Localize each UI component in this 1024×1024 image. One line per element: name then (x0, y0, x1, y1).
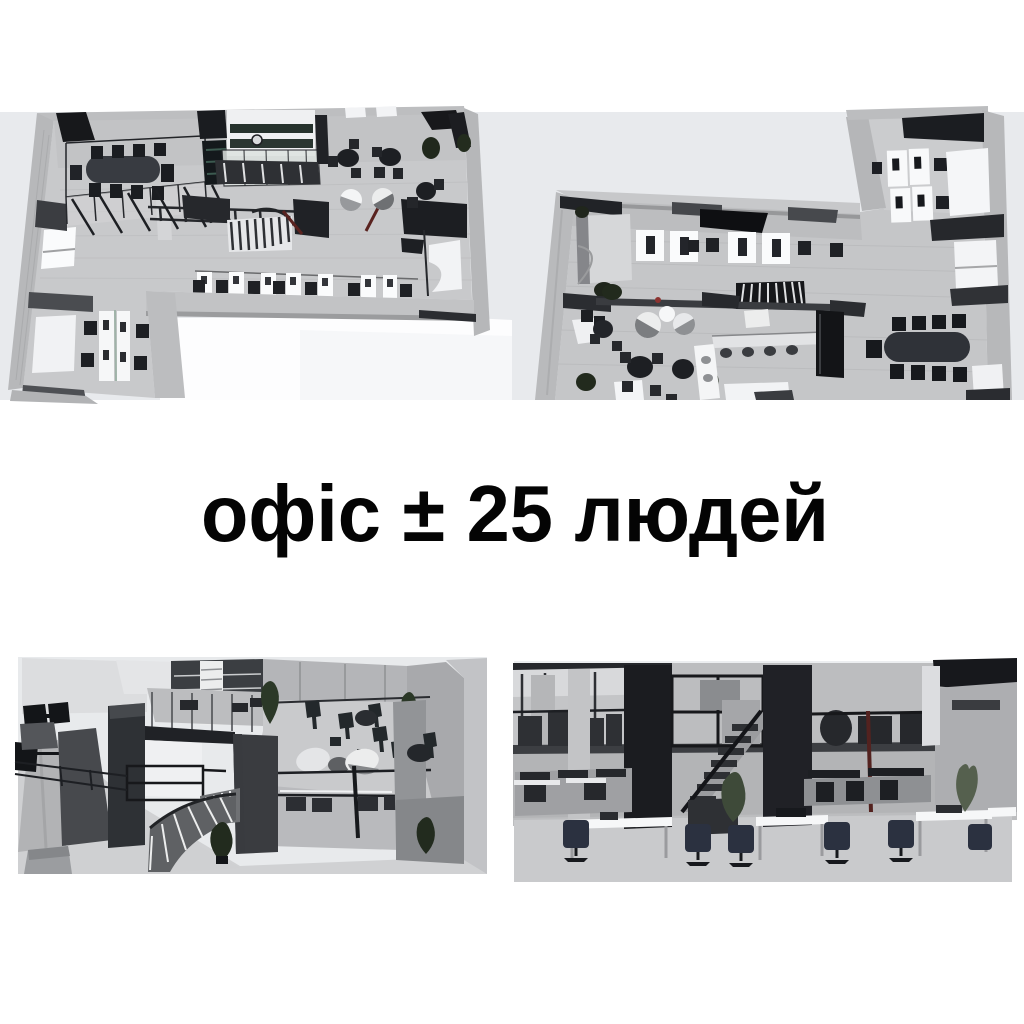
svg-text:офіс ± 25 людей: офіс ± 25 людей (201, 469, 829, 558)
